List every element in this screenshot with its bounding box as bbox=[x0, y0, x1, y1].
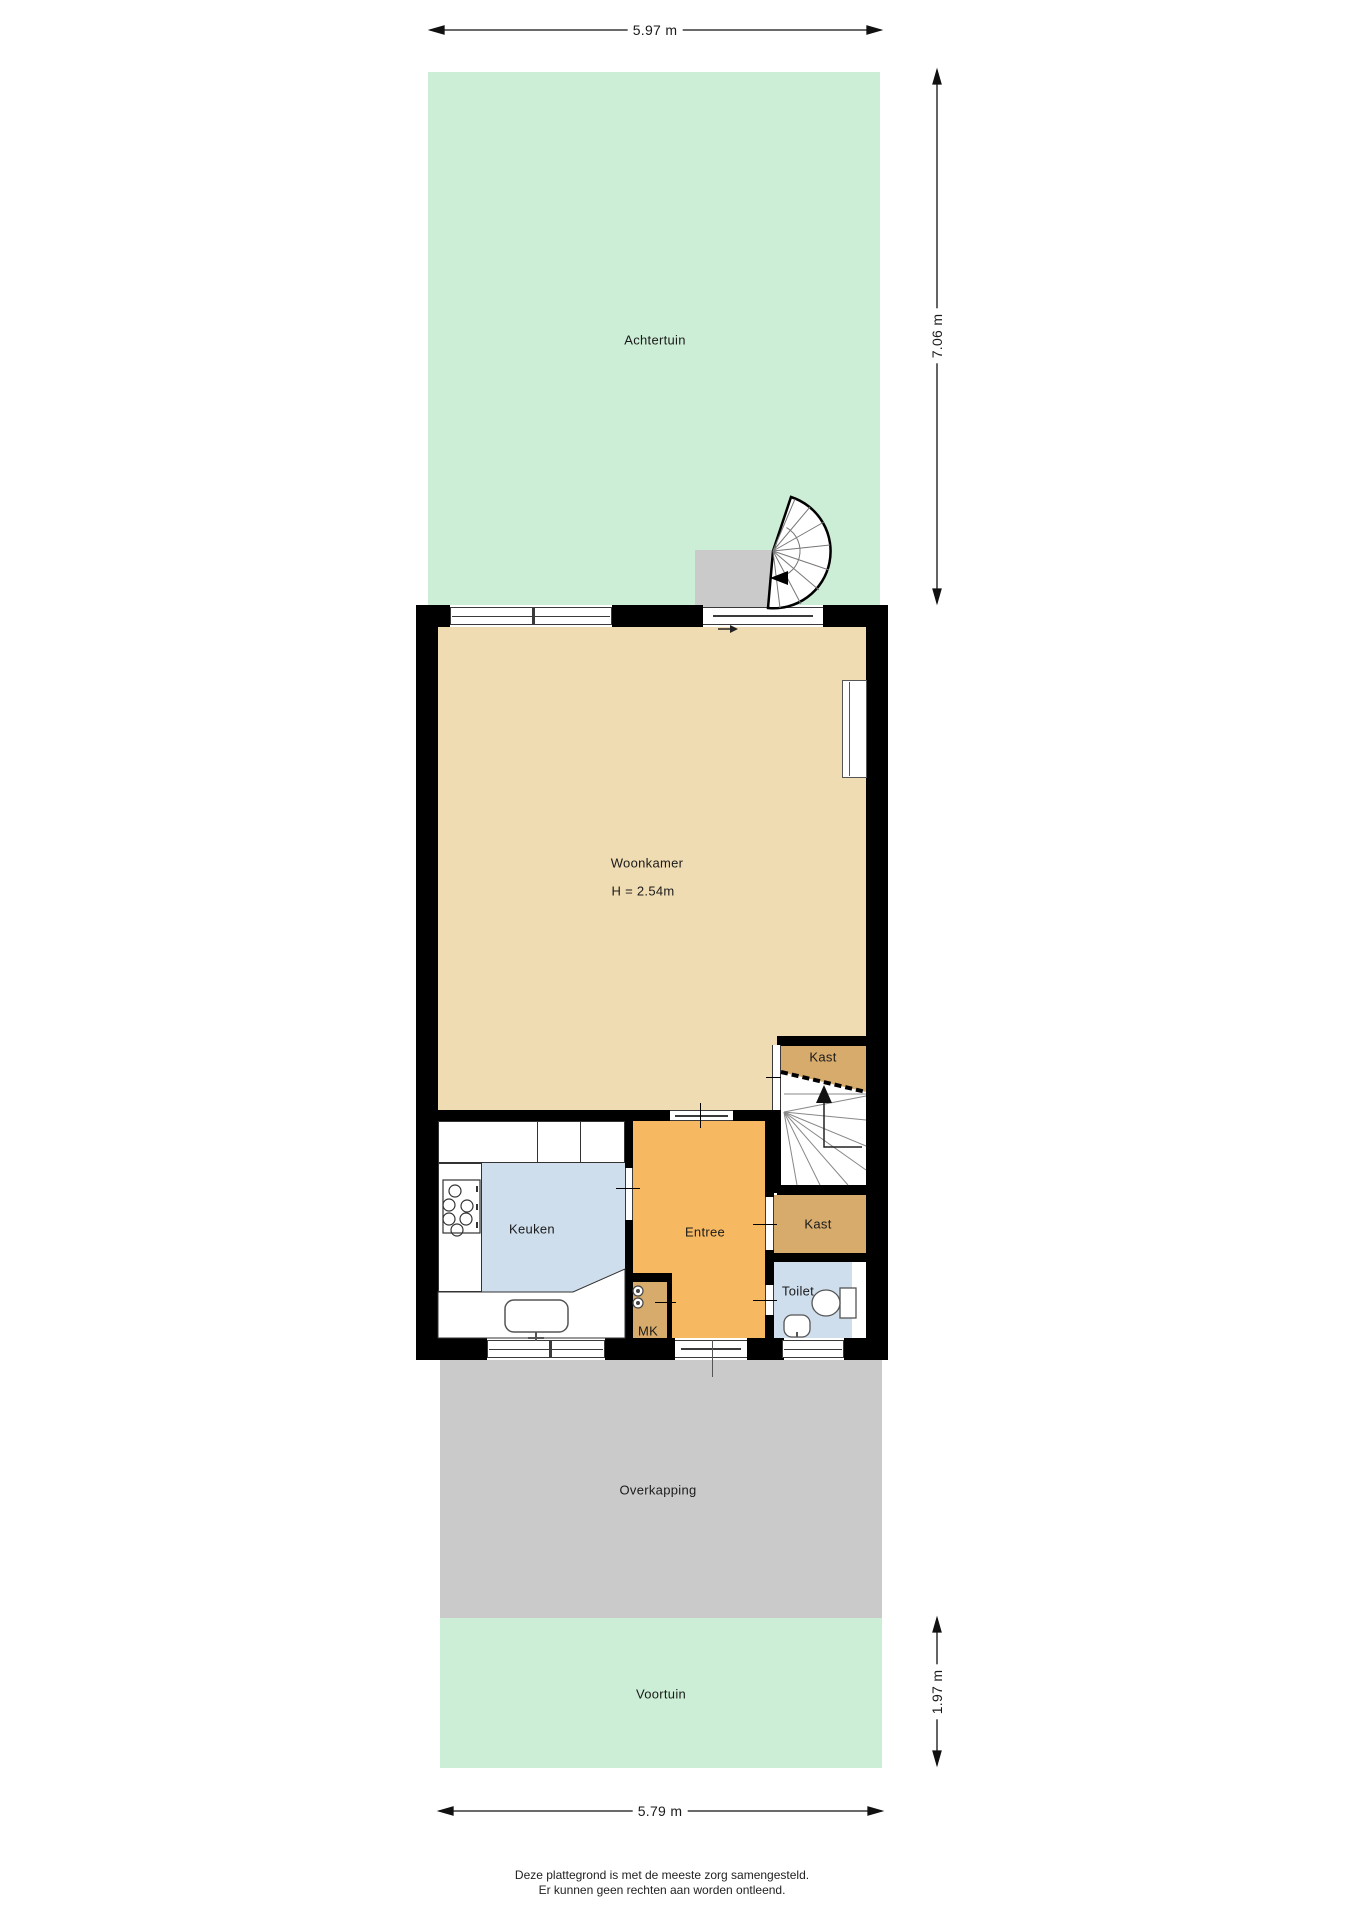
dimension-front-depth: 1.97 m bbox=[929, 1665, 945, 1720]
plan-details-layer bbox=[0, 0, 1358, 1920]
label-toilet: Toilet bbox=[782, 1284, 814, 1299]
stove-icon bbox=[443, 1180, 480, 1236]
spiral-stairs-icon bbox=[768, 497, 831, 608]
label-achtertuin: Achtertuin bbox=[624, 333, 686, 348]
dimension-top-width: 5.97 m bbox=[628, 22, 683, 38]
label-kast-onder: Kast bbox=[804, 1217, 831, 1232]
label-kast-boven: Kast bbox=[809, 1050, 836, 1065]
door-direction-arrow bbox=[718, 625, 738, 633]
disclaimer-line-2: Er kunnen geen rechten aan worden ontlee… bbox=[539, 1883, 786, 1897]
label-woonkamer: Woonkamer bbox=[611, 856, 684, 871]
dimension-arrows bbox=[430, 26, 941, 1815]
stairs-icon bbox=[781, 1046, 866, 1185]
label-entree: Entree bbox=[685, 1225, 725, 1240]
disclaimer-line-1: Deze plattegrond is met de meeste zorg s… bbox=[515, 1868, 809, 1882]
kitchen-counter-sink bbox=[438, 1269, 625, 1341]
dimension-bottom-width: 5.79 m bbox=[633, 1803, 688, 1819]
label-keuken: Keuken bbox=[509, 1222, 555, 1237]
label-overkapping: Overkapping bbox=[619, 1483, 696, 1498]
label-voortuin: Voortuin bbox=[636, 1687, 686, 1702]
meter-icons bbox=[633, 1286, 643, 1308]
label-mk: MK bbox=[638, 1324, 658, 1339]
dimension-back-depth: 7.06 m bbox=[929, 309, 945, 364]
floorplan-canvas: Achtertuin Woonkamer H = 2.54m Kast Keuk… bbox=[0, 0, 1358, 1920]
label-woonkamer-height: H = 2.54m bbox=[611, 884, 674, 899]
